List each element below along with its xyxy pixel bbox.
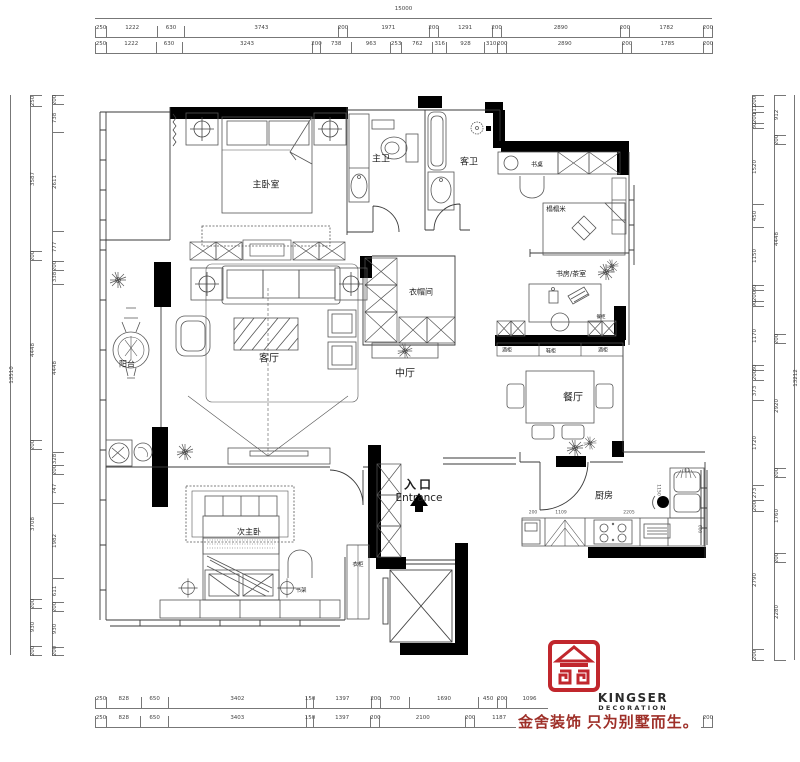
balcony-items	[106, 308, 152, 466]
dim-value: 200	[752, 501, 758, 512]
dim-value: 338	[52, 272, 58, 283]
label-study-tea: 书房/茶室	[556, 269, 586, 279]
dim-segment: 738	[320, 42, 350, 54]
dim-segment: 450	[752, 204, 764, 227]
dim-value: 930	[52, 624, 58, 635]
dim-value: 1760	[774, 509, 780, 523]
dim-segment: 200	[497, 42, 506, 54]
dim-segment: 930	[52, 611, 64, 647]
dim-segment: 3743	[184, 26, 338, 38]
dim-segment: 200	[465, 716, 474, 728]
dim-segment: 700	[380, 697, 409, 709]
dim-segment: 200	[52, 95, 64, 104]
dim-left-overall: 13510	[10, 95, 21, 655]
dim-value: 3243	[240, 41, 254, 47]
dim-value: 450	[752, 211, 758, 222]
label-guest-bath: 客卫	[460, 155, 478, 168]
label-second-master: 次主卧	[237, 527, 261, 538]
dim-segment: 200	[752, 370, 764, 381]
dim-segment: 747	[52, 474, 64, 503]
label-side-cabinet: 餐柜	[597, 314, 606, 320]
dim-segment: 2890	[501, 26, 620, 38]
dim-value: 3743	[254, 25, 268, 31]
dim-segment: 650	[140, 716, 167, 728]
dim-segment: 2100	[379, 716, 465, 728]
dim-segment: 4448	[30, 260, 42, 440]
dining-set	[507, 371, 613, 439]
dim-value: 2890	[554, 25, 568, 31]
label-master-bath: 主卫	[372, 152, 390, 165]
dim-segment: 250	[30, 95, 42, 106]
dim-segment: 450	[478, 697, 497, 709]
dim-segment: 200	[620, 26, 629, 38]
dim-value: 912	[774, 110, 780, 121]
dim-segment: 200	[774, 468, 786, 477]
dim-value: 4448	[30, 343, 36, 357]
plant-icon	[606, 260, 619, 273]
dim-segment: 777	[52, 231, 64, 261]
dim-segment: 738	[52, 104, 64, 133]
dim-segment: 200	[52, 261, 64, 270]
dim-segment: 1782	[629, 26, 703, 38]
dim-segment: 3403	[168, 716, 306, 728]
dim-value: 310	[486, 41, 497, 47]
label-entrance-en: Entrance	[395, 492, 442, 504]
dim-segment: 1222	[106, 26, 157, 38]
dim-value: 250	[96, 41, 107, 47]
dim-segment: 1291	[438, 26, 492, 38]
dim-value: 200	[703, 25, 714, 31]
dim-segment: 912	[774, 95, 786, 135]
dim-row-top-1: 2501222630374320019712001291200289020017…	[95, 26, 713, 38]
dim-value: 1397	[335, 715, 349, 721]
dim-value: 611	[52, 585, 58, 596]
dim-value: 1150	[752, 249, 758, 263]
kitchen-dim: 2205	[623, 511, 634, 516]
dim-value: 250	[96, 715, 107, 721]
dim-segment: 250	[95, 716, 106, 728]
label-cloakroom: 衣帽间	[409, 287, 433, 298]
dim-segment: 273	[752, 485, 764, 499]
dim-segment: 2890	[506, 42, 622, 54]
dim-segment: 828	[106, 697, 140, 709]
dim-value: 630	[164, 41, 175, 47]
dim-segment: 200	[492, 26, 501, 38]
dim-segment: 3587	[30, 106, 42, 251]
dim-segment: 200	[774, 135, 786, 144]
dim-segment: 928	[446, 42, 484, 54]
dim-segment: 150	[306, 697, 313, 709]
dim-segment: 200	[30, 440, 42, 449]
lamp-icon	[195, 272, 219, 296]
dim-segment: 1222	[106, 42, 156, 54]
dim-segment: 1690	[409, 697, 478, 709]
dim-segment: 611	[52, 578, 64, 602]
dim-segment: 250	[95, 697, 106, 709]
dim-segment: 200	[52, 602, 64, 611]
dim-value: 4448	[774, 232, 780, 246]
dim-segment: 328	[52, 452, 64, 465]
dim-value: 200	[752, 370, 758, 381]
dim-segment: 200	[429, 26, 438, 38]
dim-segment: 1397	[313, 697, 370, 709]
lamp-icon	[339, 272, 363, 296]
second-master-furniture	[160, 486, 369, 619]
dim-value: 1785	[661, 41, 675, 47]
dim-value: 3403	[230, 715, 244, 721]
dim-value: 963	[366, 41, 377, 47]
dim-value: 253	[391, 41, 402, 47]
dim-value: 2280	[774, 605, 780, 619]
dim-segment: 200	[752, 649, 764, 660]
dim-segment: 373	[752, 380, 764, 399]
dim-value: 2611	[52, 175, 58, 189]
kitchen-dim: 600	[697, 525, 702, 534]
dim-segment: 630	[157, 26, 184, 38]
dim-segment: 200	[622, 42, 631, 54]
dim-value: 2920	[774, 399, 780, 413]
dim-segment: 200	[371, 697, 380, 709]
dim-value: 450	[483, 696, 494, 702]
dim-value: 2790	[752, 573, 758, 587]
dim-value: 316	[435, 41, 446, 47]
dim-segment: 200	[52, 465, 64, 474]
label-living-room: 客厅	[259, 350, 279, 365]
dim-value: 738	[52, 113, 58, 124]
dim-segment: 200	[497, 697, 506, 709]
dim-value: 1187	[492, 715, 506, 721]
dim-value: 2100	[416, 715, 430, 721]
dim-value: 1690	[437, 696, 451, 702]
dim-right-overall: 13212	[794, 95, 800, 660]
dim-segment: 200	[774, 553, 786, 562]
label-bookshelf: 书架	[295, 586, 306, 594]
kingser-logo-icon	[607, 640, 659, 692]
plant-icon	[398, 344, 412, 358]
dim-segment: 200	[752, 290, 764, 301]
dim-segment: 1720	[752, 400, 764, 486]
dim-segment: 253	[390, 42, 401, 54]
dim-value: 250	[96, 25, 107, 31]
lamp-icon	[190, 117, 214, 141]
dim-segment: 200	[312, 42, 321, 54]
floor-plan-sheet: 主卧室 主卫 客卫 书桌 榻榻米 衣帽间 客厅 中厅 书房/茶室 餐厅 厨房 阳…	[0, 0, 800, 762]
dim-value: 13212	[793, 369, 799, 387]
dim-value: 200	[752, 290, 758, 301]
dim-col-right-outer: 9122004448200292020017602002280	[774, 95, 786, 661]
dim-segment: 250	[95, 42, 106, 54]
dim-segment: 1397	[313, 716, 370, 728]
dim-segment: 3243	[182, 42, 312, 54]
lamp-icon	[318, 117, 342, 141]
dim-value: 273	[752, 488, 758, 499]
dim-value: 1520	[752, 160, 758, 174]
dim-segment: 762	[401, 42, 432, 54]
elevator	[383, 570, 452, 642]
dim-segment: 1982	[52, 503, 64, 578]
label-kitchen: 厨房	[595, 489, 613, 502]
dim-value: 328	[52, 454, 58, 465]
label-mid-hall: 中厅	[395, 365, 415, 380]
dim-col-left-inner: 2007382611777200338444832820074719826112…	[52, 95, 64, 656]
dim-value: 1971	[381, 25, 395, 31]
dim-segment: 1150	[752, 227, 764, 285]
dim-value: 13510	[9, 366, 15, 384]
kitchen-dim: 1150	[656, 484, 661, 495]
dim-segment: 930	[30, 608, 42, 646]
dim-segment: 1170	[752, 306, 764, 365]
kitchen-dim: 1109	[555, 511, 566, 516]
dim-value: 928	[460, 41, 471, 47]
dim-segment: 3708	[30, 449, 42, 599]
dim-value: 250	[96, 696, 107, 702]
dim-value: 777	[52, 242, 58, 253]
dim-value: 200	[752, 650, 758, 661]
dim-value: 930	[30, 622, 36, 633]
dim-value: 650	[149, 696, 160, 702]
dim-value: 700	[389, 696, 400, 702]
dim-segment: 338	[52, 270, 64, 284]
dim-value: 3402	[230, 696, 244, 702]
label-tatami: 榻榻米	[546, 203, 566, 213]
dim-value: 1170	[752, 329, 758, 343]
dim-segment: 4448	[52, 284, 64, 452]
brand-tagline: 金舍装饰 只为别墅而生。	[516, 710, 701, 733]
dim-segment: 963	[351, 42, 390, 54]
dim-segment: 650	[141, 697, 168, 709]
dim-value: 1222	[125, 25, 139, 31]
label-balcony: 阳台	[119, 359, 135, 370]
dim-value: 650	[149, 715, 160, 721]
label-dining: 餐厅	[563, 389, 583, 404]
dim-segment: 150	[306, 716, 313, 728]
label-desk: 书桌	[531, 160, 543, 169]
dim-value: 4448	[52, 361, 58, 375]
dim-value: 200	[30, 646, 36, 657]
dim-top-overall: 15000	[95, 8, 712, 19]
dim-segment: 310	[484, 42, 497, 54]
dim-value: 738	[331, 41, 342, 47]
dim-value: 200	[703, 41, 714, 47]
dim-segment: 1520	[752, 128, 764, 204]
dim-value: 828	[119, 715, 130, 721]
dim-row-top-2: 2501222630324320073896325376231692831020…	[95, 42, 713, 54]
lamp-icon	[277, 578, 296, 597]
dim-segment: 1971	[347, 26, 429, 38]
kitchen-fixtures	[522, 468, 704, 546]
dim-segment: 316	[432, 42, 446, 54]
label-wardrobe: 衣柜	[352, 560, 363, 568]
lamp-icon	[178, 578, 197, 597]
dim-segment: 630	[156, 42, 182, 54]
dim-segment: 2920	[774, 343, 786, 468]
brand-name: KINGSER	[548, 692, 718, 705]
dim-segment: 1760	[774, 477, 786, 553]
dim-segment: 1096	[506, 697, 551, 709]
dim-value: 373	[752, 385, 758, 396]
dim-segment: 2611	[52, 132, 64, 231]
dim-value: 1222	[124, 41, 138, 47]
dim-value: 747	[52, 483, 58, 494]
label-shoe-cabinet: 鞋柜	[546, 348, 556, 355]
company-logo: KINGSER DECORATION	[548, 640, 718, 712]
dim-segment: 200	[30, 599, 42, 608]
dim-segment: 200	[752, 500, 764, 511]
label-entrance-cn: 入口	[404, 476, 434, 493]
plant-icon	[567, 440, 583, 456]
dim-value: 3708	[30, 517, 36, 531]
dim-segment: 2790	[752, 511, 764, 649]
dim-segment: 1785	[631, 42, 703, 54]
dim-segment: 200	[703, 26, 712, 38]
kitchen-dim: 200	[529, 511, 538, 516]
study-tea-furniture	[529, 284, 601, 331]
dim-value: 762	[412, 41, 423, 47]
label-master-bedroom: 主卧室	[252, 178, 279, 191]
plant-icon	[177, 444, 193, 460]
dim-value: 1720	[752, 436, 758, 450]
dim-segment: 3402	[168, 697, 306, 709]
dim-segment: 200	[774, 334, 786, 343]
dim-value: 1291	[458, 25, 472, 31]
dim-segment: 200	[52, 647, 64, 656]
plant-icon	[110, 272, 126, 288]
dim-value: 250	[30, 96, 36, 107]
dim-segment: 4448	[774, 144, 786, 334]
dim-segment: 200	[30, 646, 42, 655]
dim-segment: 200	[30, 251, 42, 260]
dim-value: 1982	[52, 534, 58, 548]
dim-col-right-inner: 2001112008015204501150802009011708020037…	[752, 95, 764, 661]
dim-segment: 250	[95, 26, 106, 38]
dim-value: 1096	[522, 696, 536, 702]
dim-value: 630	[166, 25, 177, 31]
dim-segment: 200	[703, 716, 712, 728]
dim-value: 2890	[558, 41, 572, 47]
plant-icon	[584, 437, 597, 450]
dim-value: 200	[52, 646, 58, 657]
dim-segment: 200	[338, 26, 347, 38]
dim-value: 1782	[659, 25, 673, 31]
dim-value: 1397	[335, 696, 349, 702]
dim-value: 200	[703, 715, 714, 721]
dim-segment: 200	[703, 42, 712, 54]
label-wine-cabinet-right: 酒柜	[598, 347, 608, 354]
dim-value: 828	[119, 696, 130, 702]
dim-segment: 828	[106, 716, 140, 728]
dim-segment: 2280	[774, 562, 786, 660]
dim-value: 15000	[395, 6, 413, 12]
dim-value: 3587	[30, 172, 36, 186]
dim-segment: 200	[370, 716, 379, 728]
label-wine-cabinet-left: 酒柜	[502, 347, 512, 354]
dim-col-left-outer: 250358720044482003708200930200	[30, 95, 42, 656]
